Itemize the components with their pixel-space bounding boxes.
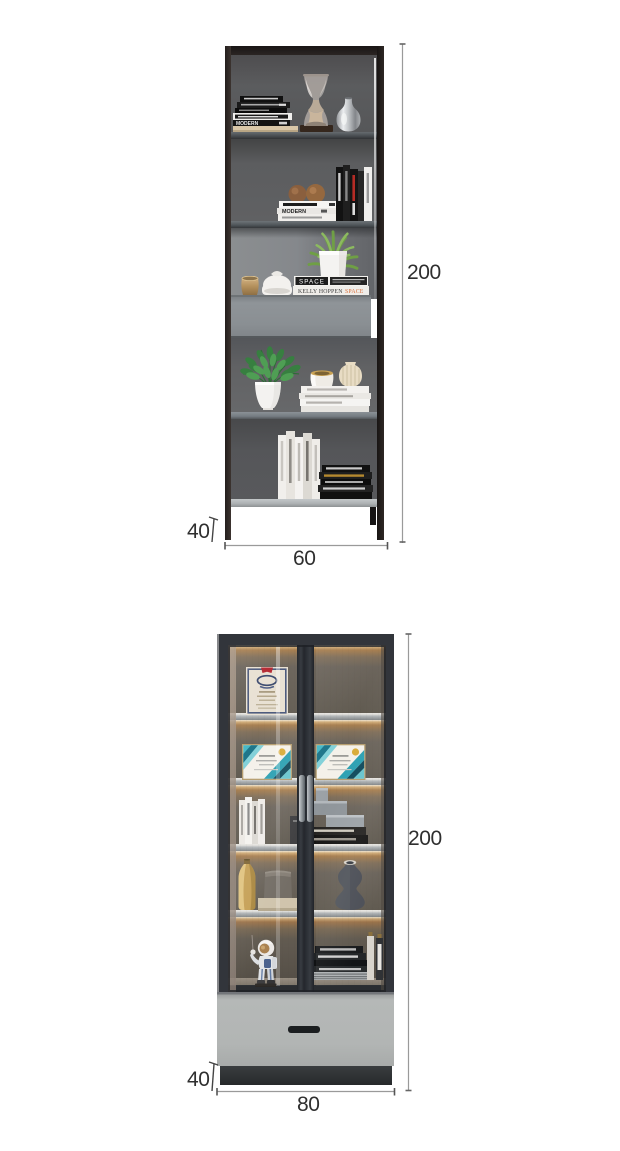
svg-text:SPACE: SPACE — [299, 278, 325, 285]
svg-text:KELLY HOPPEN: KELLY HOPPEN — [298, 289, 343, 295]
svg-text:SPACE: SPACE — [345, 289, 364, 295]
